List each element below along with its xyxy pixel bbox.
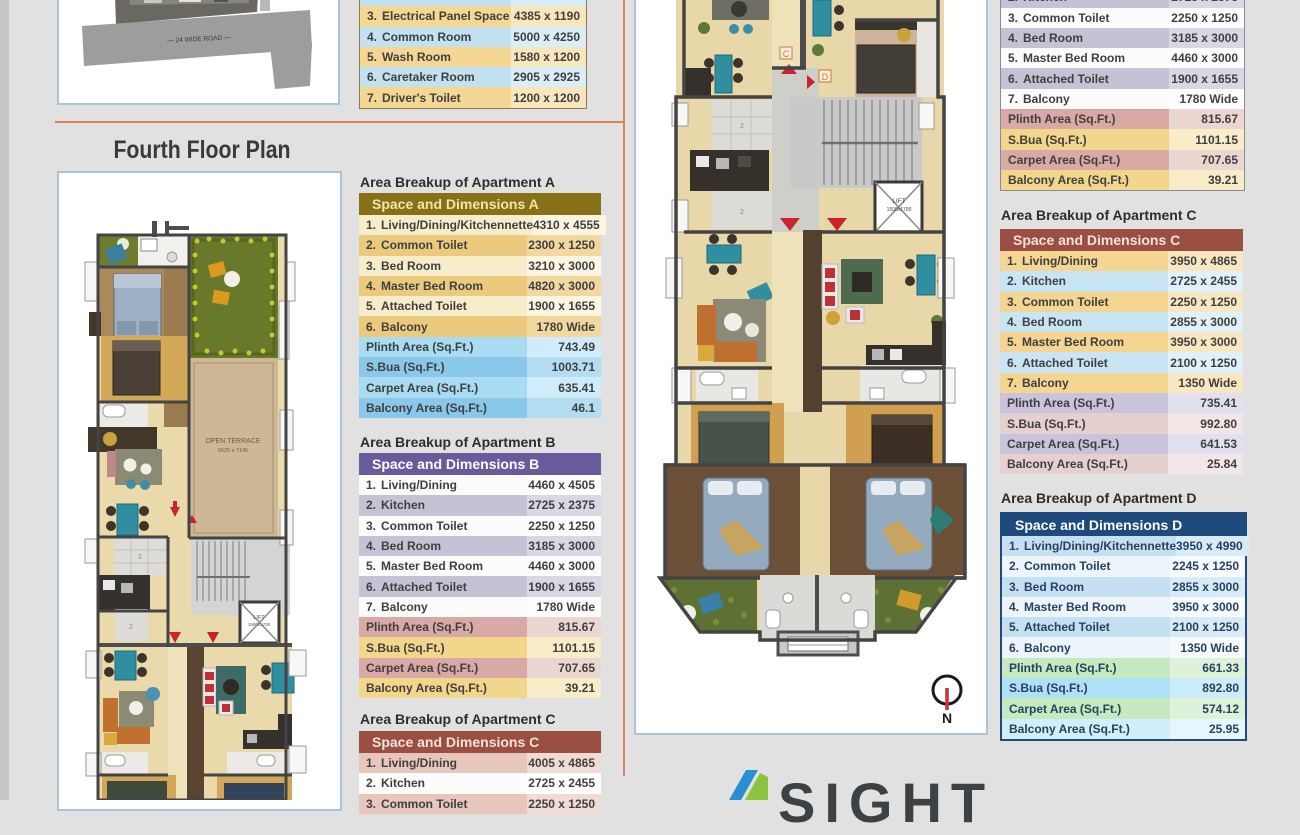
svg-text:6625 x 7145: 6625 x 7145 <box>218 448 248 454</box>
svg-text:C: C <box>783 49 790 59</box>
svg-text:1500x1700: 1500x1700 <box>248 622 271 627</box>
svg-text:2: 2 <box>740 209 744 216</box>
svg-text:2: 2 <box>138 554 142 561</box>
svg-text:OPEN TERRACE: OPEN TERRACE <box>205 438 260 445</box>
svg-text:LIFT: LIFT <box>892 198 905 205</box>
svg-text:LIFT: LIFT <box>253 615 265 621</box>
svg-text:2: 2 <box>129 624 133 631</box>
svg-text:2: 2 <box>740 123 744 130</box>
svg-text:N: N <box>942 710 952 726</box>
svg-text:1500x1700: 1500x1700 <box>887 207 912 213</box>
svg-text:D: D <box>822 72 829 82</box>
